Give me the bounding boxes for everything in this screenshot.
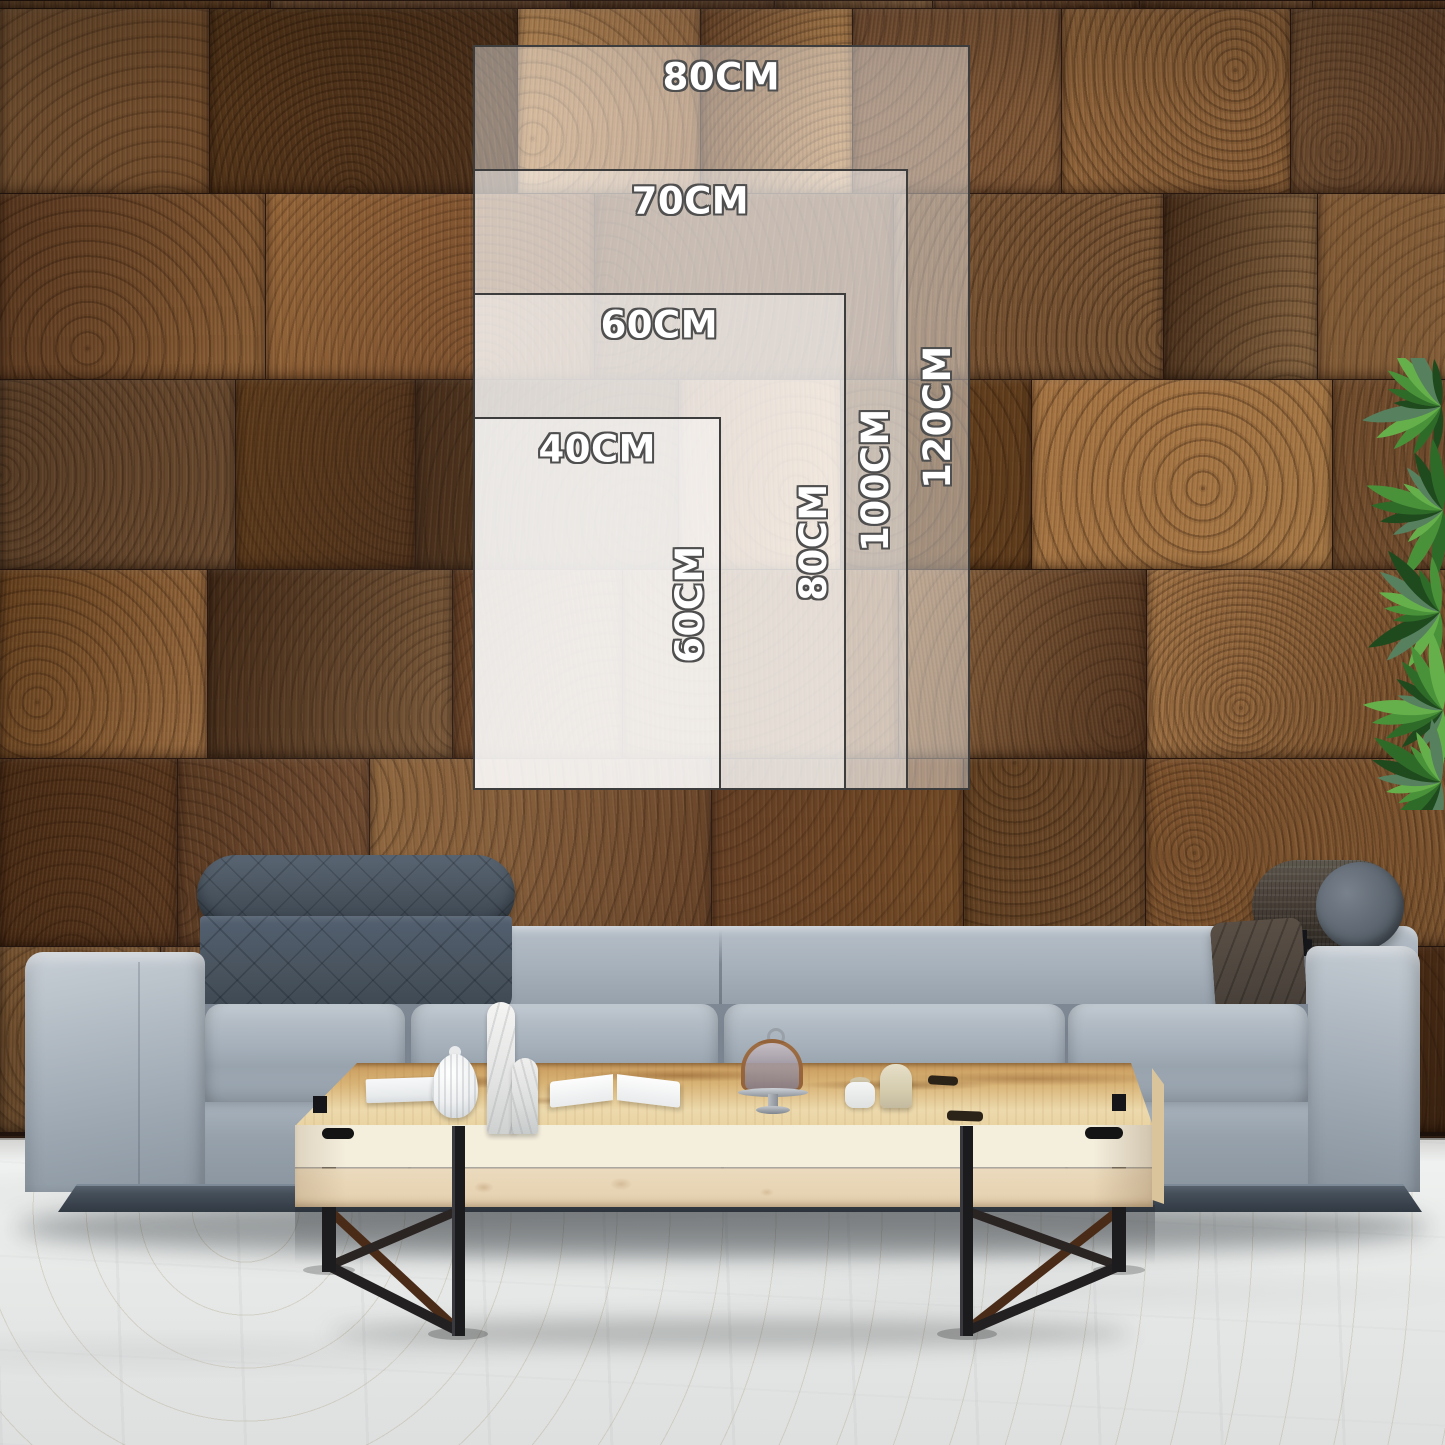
wood-block bbox=[210, 9, 517, 193]
plant bbox=[1363, 358, 1445, 810]
wood-block bbox=[1318, 194, 1445, 379]
width-label: 80CM bbox=[663, 58, 780, 95]
wood-block bbox=[0, 1, 270, 8]
width-label: 70CM bbox=[632, 183, 749, 220]
wood-block bbox=[1062, 9, 1290, 193]
wood-block bbox=[208, 570, 452, 758]
wood-block bbox=[1140, 1, 1312, 8]
width-label: 60CM bbox=[601, 307, 718, 344]
wood-block bbox=[775, 1, 932, 8]
wood-block bbox=[1313, 1, 1445, 8]
sofa-armrest-right bbox=[1306, 946, 1420, 1192]
wood-block bbox=[0, 380, 235, 569]
height-label: 60CM bbox=[671, 545, 708, 662]
wood-block bbox=[0, 194, 265, 379]
living-room-size-guide: 80CM120CM70CM100CM60CM80CM40CM60CM bbox=[0, 0, 1445, 1445]
height-label: 120CM bbox=[919, 346, 956, 490]
armrest-seam bbox=[138, 962, 140, 1187]
wood-block bbox=[933, 1, 1139, 8]
wall-row bbox=[0, 0, 1445, 8]
wood-block bbox=[0, 9, 209, 193]
table-front-legs bbox=[280, 1060, 1160, 1350]
wood-block bbox=[1164, 194, 1317, 379]
wood-block bbox=[271, 1, 570, 8]
sofa-armrest-left bbox=[25, 952, 205, 1192]
wood-block bbox=[1291, 9, 1445, 193]
quilted-throw-panel bbox=[200, 916, 512, 1012]
width-label: 40CM bbox=[538, 431, 655, 468]
size-rect-40x60cm: 40CM60CM bbox=[473, 417, 721, 790]
bolster-end-cap bbox=[1316, 862, 1404, 950]
height-label: 80CM bbox=[795, 483, 832, 600]
wood-block bbox=[0, 570, 207, 758]
height-label: 100CM bbox=[857, 408, 894, 552]
wood-block bbox=[236, 380, 415, 569]
wood-block bbox=[1032, 380, 1332, 569]
wood-block bbox=[571, 1, 774, 8]
